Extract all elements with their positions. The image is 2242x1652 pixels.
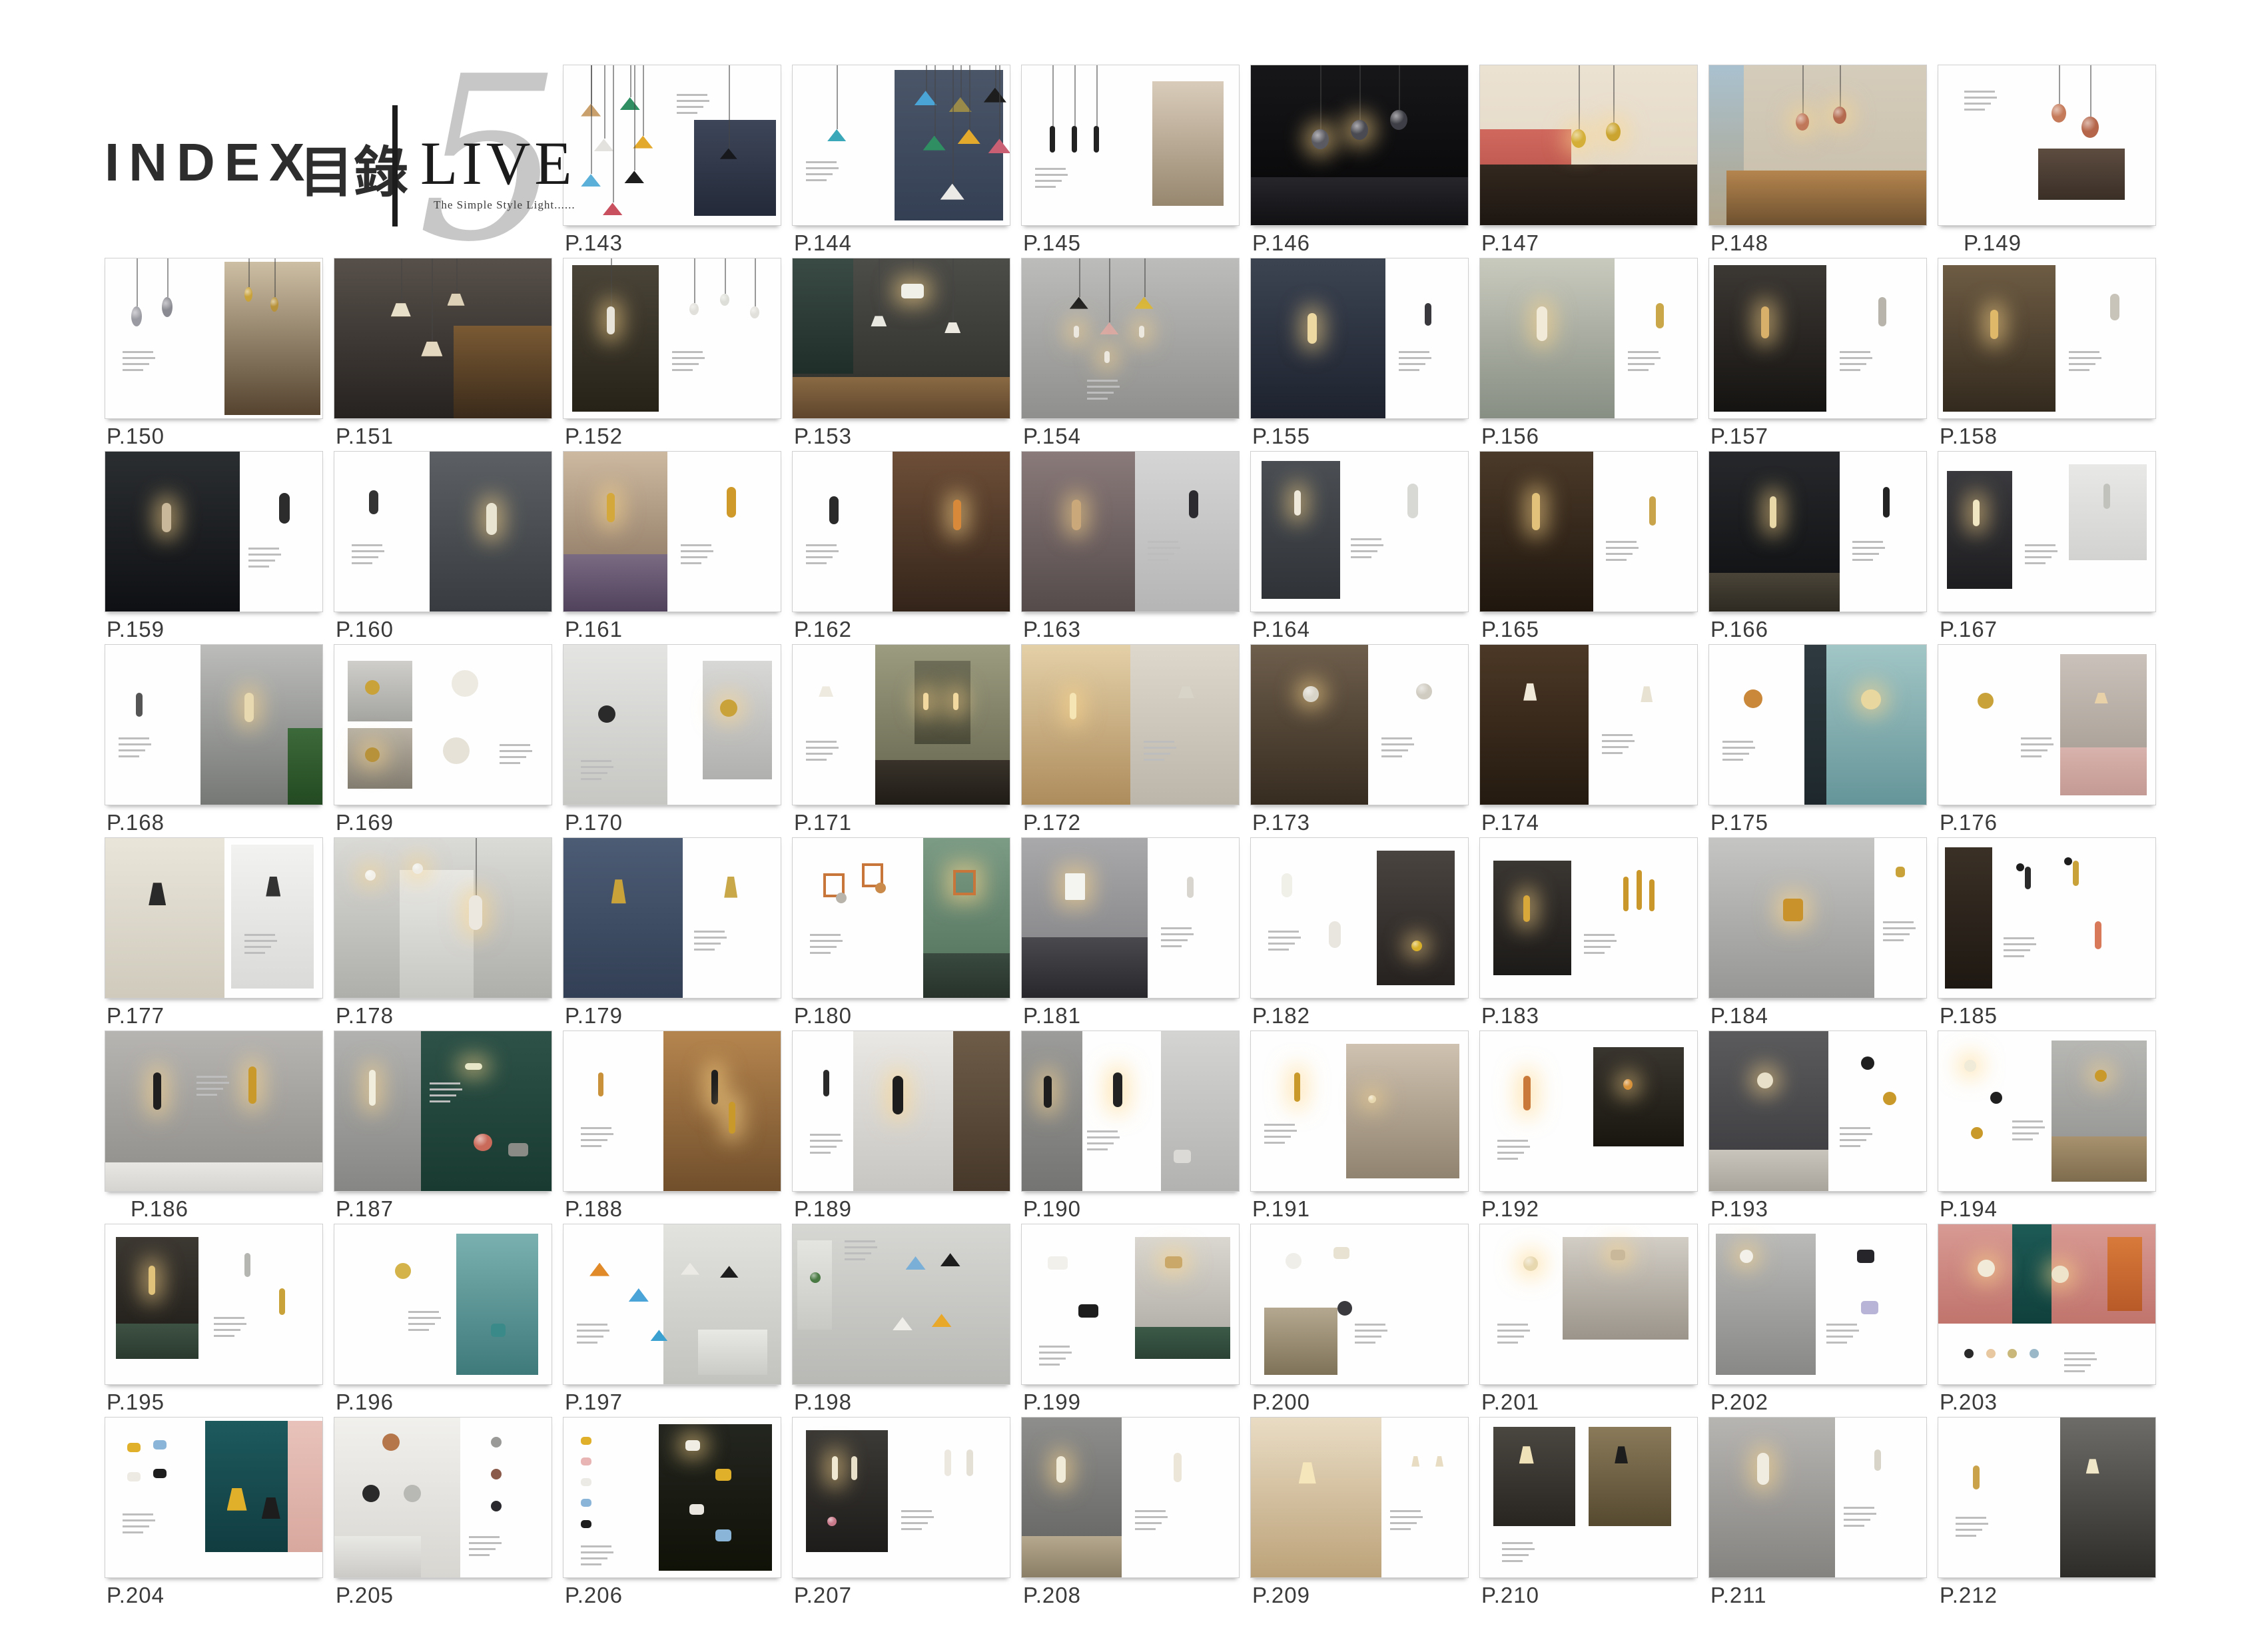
page-number-label: P.149 bbox=[1964, 230, 2022, 256]
lamp-tube-icon bbox=[1523, 1076, 1531, 1110]
pendant-wire bbox=[755, 258, 756, 306]
page-number-label: P.194 bbox=[1940, 1196, 1998, 1222]
page-number-label: P.159 bbox=[107, 617, 165, 642]
page-number-label: P.171 bbox=[794, 810, 852, 835]
lamp-tube-icon bbox=[1874, 1449, 1881, 1471]
photo-panel bbox=[1264, 1308, 1338, 1375]
pendant-wire bbox=[1074, 65, 1076, 126]
catalog-page-tile[interactable]: P.154 bbox=[1021, 258, 1240, 419]
lamp-tube-icon bbox=[823, 1070, 829, 1096]
lamp-tube-icon bbox=[162, 503, 171, 532]
page-number-label: P.165 bbox=[1481, 617, 1539, 642]
lamp-disc-icon bbox=[1286, 1253, 1302, 1269]
catalog-page-tile[interactable]: P.155 bbox=[1250, 258, 1469, 419]
photo-panel bbox=[1152, 81, 1224, 206]
page-number-label: P.160 bbox=[336, 617, 394, 642]
photo-panel bbox=[694, 120, 777, 216]
catalog-page-tile[interactable]: P.212 bbox=[1938, 1417, 2156, 1578]
catalog-page-tile[interactable]: P.147 bbox=[1479, 65, 1698, 226]
photo-panel bbox=[793, 258, 853, 374]
page-thumbnail bbox=[793, 1031, 1010, 1191]
lamp-disc-icon bbox=[2095, 1070, 2107, 1082]
pendant-wire bbox=[2059, 65, 2060, 104]
lamp-tube-icon bbox=[369, 1070, 376, 1106]
page-thumbnail bbox=[105, 838, 322, 998]
lamp-disc-icon bbox=[1883, 1092, 1896, 1105]
photo-panel bbox=[1709, 1150, 1828, 1191]
catalog-page-tile[interactable]: P.159 bbox=[105, 451, 323, 612]
catalog-page-tile[interactable]: P.179 bbox=[563, 837, 781, 999]
catalog-page-tile[interactable]: P.183 bbox=[1479, 837, 1698, 999]
photo-panel bbox=[288, 728, 322, 805]
catalog-page-tile[interactable]: P.171 bbox=[792, 644, 1010, 805]
catalog-page-tile[interactable]: P.157 bbox=[1708, 258, 1927, 419]
lamp-drum-icon bbox=[1783, 899, 1803, 921]
lamp-tube-icon bbox=[1757, 1453, 1769, 1485]
catalog-page-tile[interactable]: P.146 bbox=[1250, 65, 1469, 226]
photo-panel bbox=[1726, 171, 1926, 225]
page-thumbnail bbox=[793, 452, 1010, 612]
product-spec-text-lines bbox=[1135, 1510, 1168, 1534]
catalog-page-tile[interactable]: P.178 bbox=[334, 837, 552, 999]
pendant-wire bbox=[604, 65, 605, 139]
page-number-label: P.195 bbox=[107, 1390, 165, 1415]
lamp-tube-icon bbox=[2095, 921, 2101, 949]
pendant-wire bbox=[476, 838, 477, 895]
lamp-tube-icon bbox=[729, 1102, 735, 1134]
page-number-label: P.168 bbox=[107, 810, 165, 835]
lamp-drum-icon bbox=[1861, 1301, 1878, 1314]
lamp-globe-icon bbox=[1351, 120, 1368, 140]
lamp-drum-icon bbox=[581, 1437, 591, 1445]
lamp-tube-icon bbox=[1523, 895, 1530, 922]
photo-panel bbox=[875, 760, 1010, 805]
lamp-globe-icon bbox=[827, 1517, 837, 1526]
catalog-page-tile[interactable]: P.208 bbox=[1021, 1417, 1240, 1578]
pendant-wire bbox=[611, 258, 612, 306]
lamp-disc-icon bbox=[2052, 1266, 2069, 1283]
pendant-wire bbox=[952, 65, 954, 184]
page-number-label: P.207 bbox=[794, 1583, 852, 1608]
page-number-label: P.177 bbox=[107, 1003, 165, 1029]
page-number-label: P.187 bbox=[336, 1196, 394, 1222]
catalog-page-tile[interactable]: P.192 bbox=[1479, 1031, 1698, 1192]
catalog-page-tile[interactable]: P.199 bbox=[1021, 1224, 1240, 1385]
lamp-drum-icon bbox=[1165, 1256, 1182, 1268]
product-spec-text-lines bbox=[901, 1510, 934, 1534]
lamp-disc-icon bbox=[491, 1501, 502, 1511]
page-thumbnail bbox=[334, 1418, 552, 1577]
catalog-page-tile[interactable]: P.145 bbox=[1021, 65, 1240, 226]
photo-panel bbox=[1709, 1418, 1835, 1577]
catalog-page-tile[interactable]: P.158 bbox=[1938, 258, 2156, 419]
lamp-disc-icon bbox=[1337, 1301, 1352, 1316]
catalog-page-tile[interactable]: P.196 bbox=[334, 1224, 552, 1385]
catalog-page-tile[interactable]: P.153 bbox=[792, 258, 1010, 419]
lamp-tube-icon bbox=[469, 895, 482, 930]
product-spec-text-lines bbox=[1844, 1507, 1876, 1531]
photo-panel bbox=[116, 1324, 198, 1359]
lamp-tube-icon bbox=[1973, 500, 1980, 526]
product-spec-text-lines bbox=[1087, 380, 1120, 404]
catalog-page-tile[interactable]: P.169 bbox=[334, 644, 552, 805]
catalog-page-tile[interactable]: P.181 bbox=[1021, 837, 1240, 999]
lamp-globe-icon bbox=[1390, 110, 1407, 130]
lamp-tube-icon bbox=[1532, 493, 1540, 530]
lamp-disc-icon bbox=[2016, 863, 2024, 871]
product-spec-text-lines bbox=[1390, 1510, 1423, 1534]
page-thumbnail bbox=[1251, 645, 1468, 805]
catalog-page-tile[interactable]: P.197 bbox=[563, 1224, 781, 1385]
lamp-tube-icon bbox=[1044, 1076, 1052, 1108]
catalog-page-tile[interactable]: P.163 bbox=[1021, 451, 1240, 612]
catalog-page-tile[interactable]: P.194 bbox=[1938, 1031, 2156, 1192]
lamp-tube-icon bbox=[1649, 879, 1655, 911]
page-number-label: P.145 bbox=[1023, 230, 1081, 256]
catalog-page-tile[interactable]: P.160 bbox=[334, 451, 552, 612]
catalog-page-tile[interactable]: P.167 bbox=[1938, 451, 2156, 612]
page-thumbnail bbox=[334, 1031, 552, 1191]
photo-panel bbox=[1022, 1536, 1122, 1577]
page-number-label: P.170 bbox=[565, 810, 623, 835]
page-thumbnail bbox=[105, 1031, 322, 1191]
catalog-page-tile[interactable]: P.209 bbox=[1250, 1417, 1469, 1578]
page-number-label: P.185 bbox=[1940, 1003, 1998, 1029]
catalog-page-tile[interactable]: P.175 bbox=[1708, 644, 1927, 805]
catalog-page-tile[interactable]: P.205 bbox=[334, 1417, 552, 1578]
page-number-label: P.198 bbox=[794, 1390, 852, 1415]
page-thumbnail bbox=[1480, 1031, 1697, 1191]
catalog-page-tile[interactable]: P.207 bbox=[792, 1417, 1010, 1578]
photo-panel bbox=[1480, 452, 1593, 612]
photo-panel bbox=[698, 1330, 767, 1374]
catalog-page-tile[interactable]: P.172 bbox=[1021, 644, 1240, 805]
photo-panel bbox=[2069, 464, 2147, 560]
catalog-page-tile[interactable]: P.143 bbox=[563, 65, 781, 226]
pendant-wire bbox=[167, 258, 169, 297]
product-spec-text-lines bbox=[677, 94, 709, 118]
photo-panel bbox=[231, 845, 314, 989]
lamp-globe-icon bbox=[1368, 1095, 1376, 1103]
product-spec-text-lines bbox=[1497, 1324, 1530, 1348]
product-spec-text-lines bbox=[352, 544, 384, 568]
photo-panel bbox=[1480, 258, 1615, 418]
pendant-wire bbox=[694, 258, 695, 303]
catalog-page-tile[interactable]: P.152 bbox=[563, 258, 781, 419]
catalog-page-tile[interactable]: P.184 bbox=[1708, 837, 1927, 999]
catalog-page-tile[interactable]: P.210 bbox=[1479, 1417, 1698, 1578]
lamp-tube-icon bbox=[1973, 1465, 1980, 1489]
catalog-page-tile[interactable]: P.176 bbox=[1938, 644, 2156, 805]
page-number-label: P.179 bbox=[565, 1003, 623, 1029]
lamp-drum-icon bbox=[581, 1520, 591, 1528]
catalog-page-tile[interactable]: P.174 bbox=[1479, 644, 1698, 805]
lamp-globe-icon bbox=[2081, 117, 2099, 138]
product-spec-text-lines bbox=[430, 1082, 462, 1106]
catalog-page-tile[interactable]: P.166 bbox=[1708, 451, 1927, 612]
index-header: INDEX 目錄 5 LIVE The Simple Style Light..… bbox=[105, 93, 637, 280]
catalog-page-tile[interactable]: P.165 bbox=[1479, 451, 1698, 612]
page-thumbnail bbox=[1251, 838, 1468, 998]
catalog-page-tile[interactable]: P.173 bbox=[1250, 644, 1469, 805]
lamp-tube-icon bbox=[1072, 500, 1081, 530]
page-thumbnail bbox=[1022, 1418, 1239, 1577]
page-number-label: P.157 bbox=[1710, 424, 1768, 449]
lamp-disc-icon bbox=[2030, 1349, 2039, 1358]
product-spec-text-lines bbox=[1497, 1140, 1530, 1164]
lamp-disc-icon bbox=[491, 1469, 502, 1479]
page-number-label: P.209 bbox=[1252, 1583, 1310, 1608]
catalog-page-tile[interactable]: P.144 bbox=[792, 65, 1010, 226]
catalog-page-tile[interactable]: P.182 bbox=[1250, 837, 1469, 999]
lamp-drum-icon bbox=[581, 1457, 591, 1465]
catalog-page-tile[interactable]: P.204 bbox=[105, 1417, 323, 1578]
page-thumbnail bbox=[1251, 258, 1468, 418]
photo-panel bbox=[703, 661, 772, 779]
page-number-label: P.175 bbox=[1710, 810, 1768, 835]
page-thumbnail bbox=[1251, 65, 1468, 225]
page-thumbnail bbox=[334, 1224, 552, 1384]
photo-panel bbox=[563, 554, 667, 612]
lamp-disc-icon bbox=[1964, 1060, 1976, 1072]
catalog-page-tile[interactable]: P.170 bbox=[563, 644, 781, 805]
pendant-wire bbox=[248, 258, 250, 287]
lamp-drum-icon bbox=[1048, 1256, 1068, 1270]
pendant-wire bbox=[934, 65, 936, 136]
catalog-page-tile[interactable]: P.198 bbox=[792, 1224, 1010, 1385]
lamp-globe-icon bbox=[1416, 683, 1432, 699]
page-thumbnail bbox=[1938, 645, 2155, 805]
lamp-tube-icon bbox=[1990, 310, 1998, 339]
catalog-page-tile[interactable]: P.211 bbox=[1708, 1417, 1927, 1578]
page-thumbnail bbox=[563, 645, 781, 805]
catalog-page-tile[interactable]: P.164 bbox=[1250, 451, 1469, 612]
photo-panel bbox=[454, 326, 552, 418]
pendant-wire bbox=[1359, 65, 1361, 120]
page-thumbnail bbox=[1938, 452, 2155, 612]
lamp-drum-icon bbox=[127, 1472, 141, 1481]
lamp-disc-icon bbox=[452, 670, 478, 697]
photo-panel bbox=[1716, 1234, 1816, 1374]
lamp-globe-icon bbox=[720, 294, 729, 306]
product-spec-text-lines bbox=[119, 737, 151, 761]
pendant-wire bbox=[879, 258, 880, 316]
catalog-page-tile[interactable]: P.168 bbox=[105, 644, 323, 805]
pendant-wire bbox=[926, 65, 927, 91]
lamp-cone-icon bbox=[589, 1263, 609, 1276]
lamp-tube-icon bbox=[598, 1072, 603, 1096]
page-thumbnail bbox=[105, 1418, 322, 1577]
lamp-shade-icon bbox=[1435, 1456, 1443, 1467]
page-number-label: P.197 bbox=[565, 1390, 623, 1415]
lamp-drum-icon bbox=[508, 1143, 528, 1156]
product-spec-text-lines bbox=[1602, 734, 1635, 758]
page-thumbnail bbox=[105, 645, 322, 805]
catalog-page-tile[interactable]: P.186 bbox=[105, 1031, 323, 1192]
lamp-tube-icon bbox=[851, 1456, 857, 1480]
pendant-wire bbox=[1802, 65, 1804, 113]
page-thumbnail bbox=[1480, 1224, 1697, 1384]
lamp-disc-icon bbox=[1861, 1056, 1874, 1070]
photo-panel bbox=[334, 1031, 421, 1191]
product-spec-text-lines bbox=[581, 1127, 613, 1151]
lamp-shade-icon bbox=[1411, 1456, 1419, 1467]
pendant-wire bbox=[613, 65, 614, 203]
page-number-label: P.178 bbox=[336, 1003, 394, 1029]
product-spec-text-lines bbox=[2012, 1120, 2045, 1144]
photo-panel bbox=[1022, 452, 1135, 612]
catalog-page-tile[interactable]: P.193 bbox=[1708, 1031, 1927, 1192]
catalog-page-tile[interactable]: P.191 bbox=[1250, 1031, 1469, 1192]
page-thumbnail bbox=[563, 1031, 781, 1191]
catalog-page-tile[interactable]: P.177 bbox=[105, 837, 323, 999]
lamp-drum-icon bbox=[153, 1440, 167, 1449]
page-thumbnail bbox=[1022, 1224, 1239, 1384]
product-spec-text-lines bbox=[1826, 1324, 1859, 1348]
lamp-drum-icon bbox=[689, 1504, 704, 1515]
page-thumbnail bbox=[1022, 838, 1239, 998]
product-spec-text-lines bbox=[1852, 541, 1885, 565]
catalog-page-tile[interactable]: P.202 bbox=[1708, 1224, 1927, 1385]
page-number-label: P.154 bbox=[1023, 424, 1081, 449]
page-thumbnail bbox=[105, 452, 322, 612]
lamp-tube-icon bbox=[893, 1076, 903, 1114]
page-thumbnail bbox=[1938, 1224, 2155, 1384]
lamp-drum-icon bbox=[715, 1469, 731, 1481]
pendant-wire bbox=[591, 65, 592, 174]
product-spec-text-lines bbox=[244, 934, 277, 958]
page-number-label: P.188 bbox=[565, 1196, 623, 1222]
catalog-page-tile[interactable]: P.180 bbox=[792, 837, 1010, 999]
photo-panel bbox=[793, 377, 1010, 418]
photo-panel bbox=[400, 870, 474, 998]
product-spec-text-lines bbox=[581, 1545, 613, 1569]
brand-word: LIVE bbox=[420, 128, 575, 199]
page-number-label: P.200 bbox=[1252, 1390, 1310, 1415]
catalog-page-tile[interactable]: P.203 bbox=[1938, 1224, 2156, 1385]
page-number-label: P.162 bbox=[794, 617, 852, 642]
lamp-tube-icon bbox=[1425, 303, 1431, 326]
page-number-label: P.144 bbox=[794, 230, 852, 256]
brand-tagline: The Simple Style Light...... bbox=[434, 199, 575, 212]
lamp-tube-icon bbox=[607, 493, 615, 522]
panel-light-icon bbox=[1065, 873, 1085, 900]
catalog-page-tile[interactable]: P.201 bbox=[1479, 1224, 1698, 1385]
page-number-label: P.150 bbox=[107, 424, 165, 449]
product-spec-text-lines bbox=[1351, 538, 1383, 562]
lamp-disc-icon bbox=[443, 737, 470, 764]
lamp-tube-icon bbox=[829, 496, 839, 524]
pendant-wire bbox=[630, 65, 631, 97]
catalog-page-tile[interactable]: P.206 bbox=[563, 1417, 781, 1578]
pendant-wire bbox=[995, 65, 996, 88]
photo-panel bbox=[105, 452, 240, 612]
catalog-page-tile[interactable]: P.149 bbox=[1938, 65, 2156, 226]
page-number-label: P.205 bbox=[336, 1583, 394, 1608]
page-number-label: P.163 bbox=[1023, 617, 1081, 642]
pendant-wire bbox=[1144, 258, 1146, 297]
page-thumbnail bbox=[1709, 1418, 1926, 1577]
catalog-page-tile[interactable]: P.161 bbox=[563, 451, 781, 612]
page-number-label: P.155 bbox=[1252, 424, 1310, 449]
lamp-tube-icon bbox=[1070, 693, 1076, 719]
lamp-tube-icon bbox=[153, 1072, 161, 1110]
pendant-wire bbox=[1109, 258, 1110, 322]
lamp-disc-icon bbox=[1971, 1127, 1983, 1139]
lamp-disc-icon bbox=[875, 883, 886, 893]
catalog-page-tile[interactable]: P.188 bbox=[563, 1031, 781, 1192]
catalog-page-tile[interactable]: P.189 bbox=[792, 1031, 1010, 1192]
lamp-globe-icon bbox=[270, 297, 278, 312]
page-number-label: P.211 bbox=[1710, 1583, 1767, 1608]
lamp-drum-icon bbox=[153, 1469, 167, 1478]
product-spec-text-lines bbox=[1584, 934, 1617, 958]
catalog-page-tile[interactable]: P.190 bbox=[1021, 1031, 1240, 1192]
pendant-wire bbox=[913, 258, 914, 284]
lamp-tube-icon bbox=[966, 1449, 973, 1476]
page-number-label: P.206 bbox=[565, 1583, 623, 1608]
lamp-drum-icon bbox=[685, 1440, 700, 1451]
lamp-globe-icon bbox=[1833, 107, 1846, 124]
product-spec-text-lines bbox=[1628, 351, 1661, 375]
catalog-page-tile[interactable]: P.200 bbox=[1250, 1224, 1469, 1385]
page-number-label: P.182 bbox=[1252, 1003, 1310, 1029]
lamp-tube-icon bbox=[1649, 496, 1656, 526]
page-thumbnail bbox=[1480, 1418, 1697, 1577]
lamp-tube-icon bbox=[1104, 351, 1110, 363]
lamp-drum-icon bbox=[1078, 1304, 1098, 1318]
photo-panel bbox=[1135, 1327, 1230, 1359]
photo-panel bbox=[2060, 747, 2147, 795]
photo-panel bbox=[563, 838, 683, 998]
lamp-drum-icon bbox=[1174, 1150, 1191, 1163]
catalog-page-tile[interactable]: P.156 bbox=[1479, 258, 1698, 419]
page-number-label: P.212 bbox=[1940, 1583, 1998, 1608]
lamp-globe-icon bbox=[131, 306, 142, 326]
catalog-page-tile[interactable]: P.187 bbox=[334, 1031, 552, 1192]
lamp-drum-icon bbox=[465, 1063, 482, 1070]
lamp-disc-icon bbox=[395, 1263, 411, 1279]
page-thumbnail bbox=[334, 645, 552, 805]
product-spec-text-lines bbox=[408, 1311, 441, 1335]
catalog-page-tile[interactable]: P.195 bbox=[105, 1224, 323, 1385]
page-thumbnail bbox=[1938, 838, 2155, 998]
lamp-tube-icon bbox=[149, 1266, 155, 1295]
page-number-label: P.190 bbox=[1023, 1196, 1081, 1222]
page-number-label: P.196 bbox=[336, 1390, 394, 1415]
product-spec-text-lines bbox=[1964, 91, 1997, 115]
lamp-drum-icon bbox=[1896, 867, 1905, 877]
catalog-page-tile[interactable]: P.150 bbox=[105, 258, 323, 419]
page-thumbnail bbox=[1709, 65, 1926, 225]
page-number-label: P.192 bbox=[1481, 1196, 1539, 1222]
lamp-cone-icon bbox=[594, 139, 614, 151]
page-number-label: P.153 bbox=[794, 424, 852, 449]
lamp-tube-icon bbox=[1187, 877, 1194, 898]
page-number-label: P.148 bbox=[1710, 230, 1768, 256]
catalog-page-tile[interactable]: P.162 bbox=[792, 451, 1010, 612]
catalog-page-tile[interactable]: P.148 bbox=[1708, 65, 1927, 226]
lamp-drum-icon bbox=[715, 1529, 731, 1541]
page-thumbnail bbox=[1938, 258, 2155, 418]
page-thumbnail bbox=[563, 1224, 781, 1384]
lamp-globe-icon bbox=[474, 1134, 492, 1151]
page-thumbnail bbox=[793, 1418, 1010, 1577]
lamp-tube-icon bbox=[1294, 1072, 1300, 1102]
page-number-label: P.201 bbox=[1481, 1390, 1539, 1415]
catalog-page-tile[interactable]: P.185 bbox=[1938, 837, 2156, 999]
pendant-wire bbox=[1052, 65, 1054, 126]
